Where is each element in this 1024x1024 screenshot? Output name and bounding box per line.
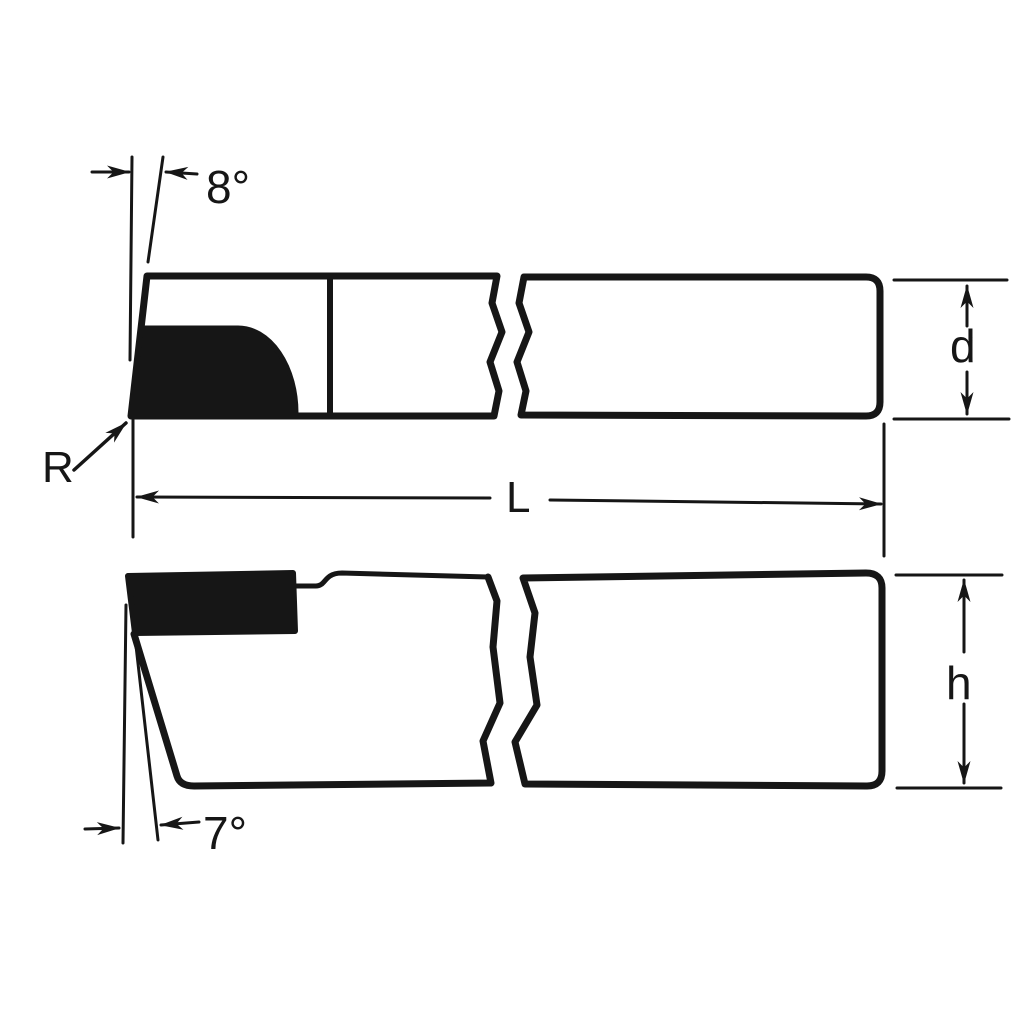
top-view	[74, 157, 1009, 556]
side-view-shank-right-section	[515, 573, 882, 786]
top-view-carbide-tip-fill	[132, 328, 296, 414]
clearance-angle-annotation	[85, 605, 199, 843]
rake-angle-label: 8°	[206, 161, 250, 213]
clearance-angle-right-arrow	[161, 822, 199, 825]
length-dimension-line-right	[550, 500, 881, 504]
overall-length-label: L	[506, 473, 530, 522]
shank-height-label: h	[946, 657, 972, 709]
clearance-angle-slanted-edge-line	[134, 628, 158, 840]
clearance-angle-label: 7°	[203, 807, 247, 859]
side-view	[85, 573, 1002, 843]
clearance-angle-left-arrow	[85, 828, 119, 829]
clearance-angle-vertical-reference-line	[123, 605, 126, 843]
tool-drawing-canvas: 8° R L d h 7°	[0, 0, 1024, 1024]
side-view-seat-step-line	[296, 573, 488, 586]
shank-width-label: d	[950, 320, 976, 372]
nose-radius-leader-arrow	[74, 423, 126, 470]
rake-angle-vertical-reference-line	[130, 157, 132, 360]
side-view-carbide-tip-fill	[128, 573, 295, 633]
rake-angle-right-arrow	[166, 172, 197, 174]
lathe-tool-engineering-drawing: 8° R L d h 7°	[0, 0, 1024, 1024]
rake-angle-slanted-edge-line	[148, 157, 163, 262]
top-view-shank-right-section	[517, 277, 880, 416]
length-dimension-line-left	[137, 497, 490, 498]
nose-radius-label: R	[42, 443, 74, 492]
